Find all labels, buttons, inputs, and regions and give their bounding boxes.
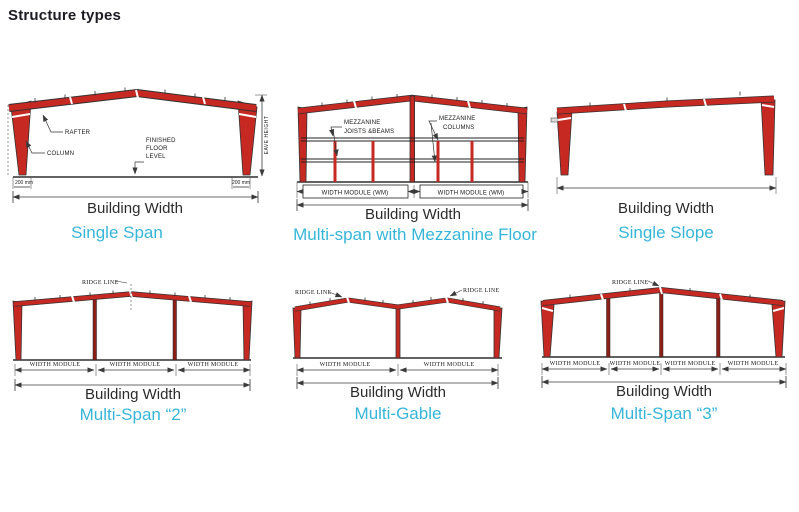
diagram-single-slope: Building Width Single Slope — [545, 85, 795, 255]
diagram-multi-span-mezzanine: MEZZANINE JOISTS &BEAMS MEZZANINE COLUMN… — [287, 85, 543, 255]
caption-multi-span-2: Multi-Span “2” — [80, 405, 187, 424]
left-column — [13, 301, 22, 360]
right-column — [243, 301, 252, 360]
wm-label-1: WIDTH MODULE — [550, 361, 601, 367]
wm-label-2: WIDTH MODULE — [110, 362, 161, 368]
inner-column-3 — [717, 296, 721, 357]
right-column — [761, 98, 775, 175]
column-leader — [26, 141, 45, 153]
left-column — [11, 101, 31, 175]
wm-left-label: WIDTH MODULE (WM) — [322, 191, 389, 197]
page-title: Structure types — [8, 7, 121, 24]
caption-multi-span-mezzanine: Multi-span with Mezzanine Floor — [293, 225, 537, 244]
floor-label-1: FINISHED — [146, 138, 176, 144]
right-column — [238, 101, 257, 175]
ridge-line-right-label: RIDGE LINE — [463, 288, 500, 294]
mezz-cols-label-2: COLUMNS — [443, 125, 474, 131]
dim-extension-lines — [557, 177, 776, 194]
inner-column-1 — [607, 296, 611, 357]
mezz-joists-label-1: MEZZANINE — [344, 120, 380, 126]
center-column — [410, 96, 415, 182]
mezz-columns-leader-1 — [429, 121, 438, 140]
wm-label-3: WIDTH MODULE — [188, 362, 239, 368]
right-column — [494, 308, 502, 358]
rafter-leader — [43, 115, 63, 132]
ridge-leader — [648, 281, 659, 286]
ridge-line-label: RIDGE LINE — [82, 280, 119, 286]
offset-right-label: 200 mm — [232, 180, 250, 186]
right-column — [518, 107, 527, 182]
diagram-multi-span-2: RIDGE LINE WIDTH MODULE WIDTH MODULE WID… — [5, 268, 280, 432]
inner-column-2 — [173, 298, 177, 360]
caption-single-slope: Single Slope — [618, 223, 713, 242]
floor-leader — [135, 162, 144, 174]
offset-left-label: 200 mm — [15, 180, 33, 186]
building-width-label: Building Width — [616, 383, 712, 400]
caption-single-span: Single Span — [71, 223, 163, 242]
offset-extension-lines — [13, 177, 250, 189]
ridge-line-label: RIDGE LINE — [612, 280, 649, 286]
mezz-cols-label-1: MEZZANINE — [439, 116, 475, 122]
inner-column-1 — [93, 298, 97, 360]
center-column — [396, 307, 400, 358]
eave-height-label: EAVE HEIGHT — [264, 116, 270, 155]
column-label: COLUMN — [47, 151, 74, 157]
rafter-label: RAFTER — [65, 130, 91, 136]
building-width-label: Building Width — [87, 200, 183, 217]
wm-label-1: WIDTH MODULE — [320, 362, 371, 368]
wm-label-3: WIDTH MODULE — [665, 361, 716, 367]
column-splice-gaps — [12, 114, 256, 117]
floor-label-3: LEVEL — [146, 154, 166, 160]
ridge-right-leader — [450, 290, 462, 296]
left-column — [298, 107, 307, 182]
building-width-label: Building Width — [85, 386, 181, 403]
caption-multi-gable: Multi-Gable — [355, 404, 442, 423]
wm-label-2: WIDTH MODULE — [424, 362, 475, 368]
mezzanine-columns — [335, 141, 472, 182]
structure-types-page: Structure types RAFTER COLUMN FINISHED F… — [0, 0, 799, 512]
joists-leader-1 — [331, 127, 342, 136]
wm-label-1: WIDTH MODULE — [30, 362, 81, 368]
diagram-multi-span-3: RIDGE LINE WIDTH MODULE WIDTH MODULE WID… — [540, 268, 799, 432]
wm-right-label: WIDTH MODULE (WM) — [438, 191, 505, 197]
wm-label-4: WIDTH MODULE — [728, 361, 779, 367]
inner-column-2 — [660, 293, 664, 357]
building-width-label: Building Width — [350, 384, 446, 401]
left-eave-bracket — [551, 118, 558, 122]
mezz-joists-label-2: JOISTS &BEAMS — [344, 129, 394, 135]
diagram-single-span: RAFTER COLUMN FINISHED FLOOR LEVEL 200 m… — [5, 85, 280, 255]
wm-label-2: WIDTH MODULE — [610, 361, 661, 367]
building-width-label: Building Width — [618, 200, 714, 217]
building-width-label: Building Width — [365, 206, 461, 223]
diagram-multi-gable: RIDGE LINE RIDGE LINE WIDTH MODULE WIDTH… — [285, 268, 535, 432]
left-column — [293, 308, 301, 358]
ridge-line-left-label: RIDGE LINE — [295, 290, 332, 296]
floor-label-2: FLOOR — [146, 146, 168, 152]
caption-multi-span-3: Multi-Span “3” — [611, 404, 718, 423]
